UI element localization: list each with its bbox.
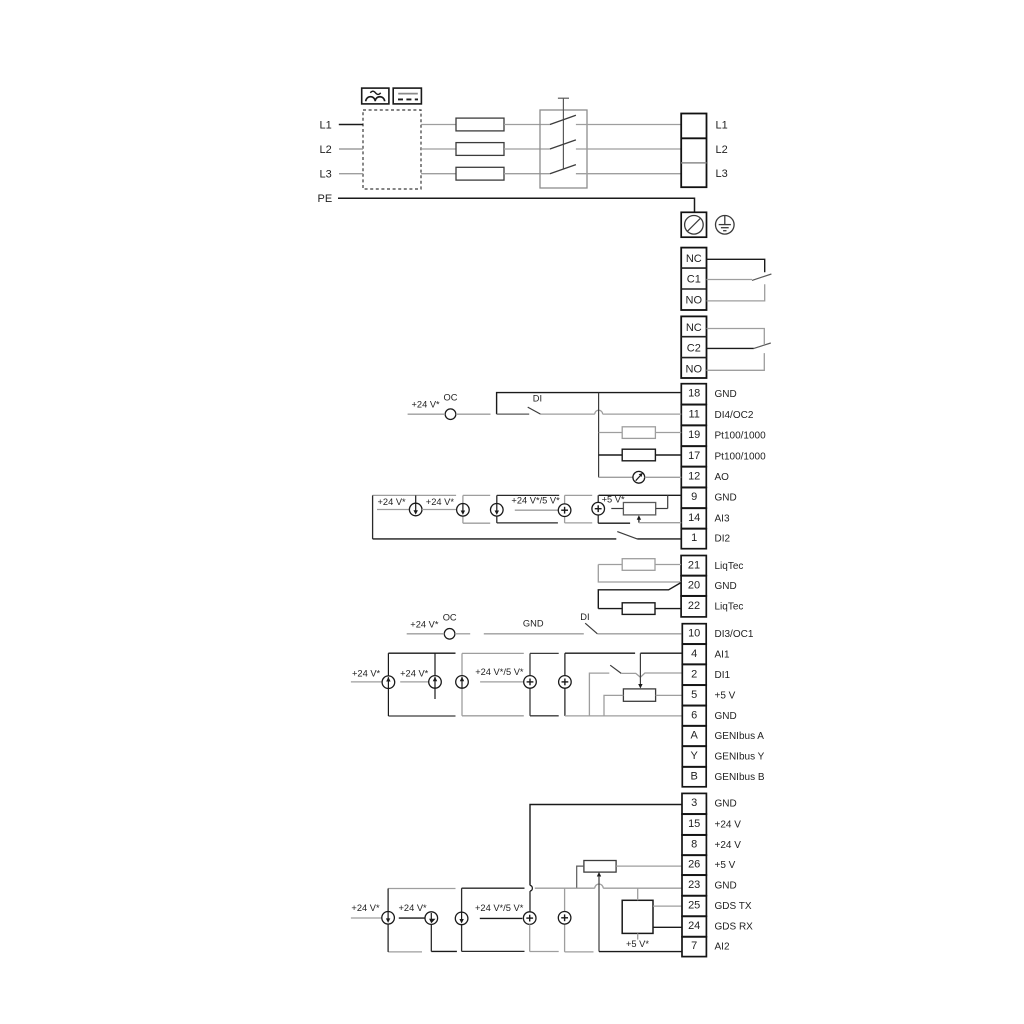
svg-text:GENIbus A: GENIbus A (715, 731, 765, 742)
svg-text:+24 V*: +24 V* (399, 903, 428, 913)
svg-text:5: 5 (691, 689, 697, 701)
svg-text:20: 20 (688, 580, 700, 592)
svg-text:C1: C1 (687, 274, 701, 286)
svg-text:AI3: AI3 (715, 513, 730, 524)
svg-text:18: 18 (688, 388, 700, 400)
svg-text:22: 22 (688, 600, 700, 612)
svg-text:4: 4 (691, 648, 697, 660)
svg-text:3: 3 (691, 797, 697, 809)
svg-text:+5 V: +5 V (715, 691, 736, 702)
svg-text:2: 2 (691, 668, 697, 680)
svg-text:L2: L2 (320, 144, 332, 156)
svg-text:+5 V: +5 V (715, 860, 736, 871)
svg-text:LiqTec: LiqTec (715, 602, 744, 613)
svg-text:+24 V*/5 V*: +24 V*/5 V* (475, 903, 524, 913)
svg-text:GDS TX: GDS TX (715, 901, 752, 912)
svg-text:11: 11 (688, 408, 699, 420)
svg-text:21: 21 (688, 559, 700, 571)
svg-text:8: 8 (691, 839, 697, 851)
svg-text:AI1: AI1 (715, 649, 730, 660)
svg-text:Y: Y (691, 750, 699, 762)
svg-text:+24 V*: +24 V* (410, 620, 439, 630)
svg-text:NC: NC (686, 322, 702, 334)
svg-text:L1: L1 (716, 120, 728, 132)
svg-text:DI1: DI1 (715, 670, 731, 681)
svg-text:Pt100/1000: Pt100/1000 (715, 451, 767, 462)
svg-text:+24 V*/5 V*: +24 V*/5 V* (475, 667, 524, 677)
svg-text:12: 12 (688, 470, 700, 482)
svg-text:GND: GND (715, 389, 737, 400)
svg-text:26: 26 (688, 859, 700, 871)
svg-text:A: A (691, 730, 699, 742)
svg-text:L3: L3 (716, 168, 728, 180)
svg-text:+24 V*: +24 V* (426, 497, 455, 507)
svg-text:PE: PE (318, 193, 333, 205)
svg-text:6: 6 (691, 709, 697, 721)
svg-text:1: 1 (691, 532, 697, 544)
svg-text:OC: OC (444, 393, 458, 403)
svg-text:19: 19 (688, 429, 700, 441)
svg-text:14: 14 (688, 512, 700, 524)
svg-text:+24 V: +24 V (715, 820, 742, 831)
svg-text:GND: GND (715, 880, 737, 891)
svg-text:+24 V*: +24 V* (378, 497, 407, 507)
svg-text:L3: L3 (320, 168, 332, 180)
svg-text:DI4/OC2: DI4/OC2 (715, 410, 754, 421)
svg-text:AO: AO (715, 472, 730, 483)
svg-text:9: 9 (691, 491, 697, 503)
svg-text:GND: GND (523, 619, 544, 629)
svg-text:NO: NO (686, 295, 703, 307)
svg-text:DI2: DI2 (715, 534, 731, 545)
svg-text:L1: L1 (320, 119, 332, 131)
svg-text:15: 15 (688, 818, 700, 830)
svg-text:GENIbus B: GENIbus B (715, 772, 765, 783)
svg-text:24: 24 (688, 920, 700, 932)
svg-text:+24 V*/5 V*: +24 V*/5 V* (511, 496, 560, 506)
svg-text:7: 7 (691, 940, 697, 952)
svg-text:GENIbus Y: GENIbus Y (715, 752, 765, 763)
svg-text:GDS RX: GDS RX (715, 922, 754, 933)
svg-text:L2: L2 (716, 144, 728, 156)
svg-text:GND: GND (715, 799, 737, 810)
svg-text:B: B (691, 771, 698, 783)
svg-text:DI: DI (533, 394, 542, 404)
svg-text:DI: DI (580, 612, 589, 622)
svg-text:NC: NC (686, 253, 702, 265)
svg-text:NO: NO (686, 364, 703, 376)
svg-text:+24 V*: +24 V* (400, 668, 429, 678)
svg-text:GND: GND (715, 493, 737, 504)
svg-text:GND: GND (715, 711, 737, 722)
svg-text:+24 V*: +24 V* (412, 400, 441, 410)
svg-text:17: 17 (688, 450, 700, 462)
svg-text:23: 23 (688, 879, 700, 891)
svg-text:10: 10 (688, 628, 700, 640)
svg-text:LiqTec: LiqTec (715, 561, 744, 572)
svg-text:DI3/OC1: DI3/OC1 (715, 629, 754, 640)
svg-text:C2: C2 (687, 343, 701, 355)
svg-text:GND: GND (715, 581, 737, 592)
svg-text:OC: OC (443, 613, 457, 623)
svg-text:+5 V*: +5 V* (626, 939, 649, 949)
svg-text:+24 V*: +24 V* (352, 668, 381, 678)
svg-text:25: 25 (688, 900, 700, 912)
svg-text:+24 V: +24 V (715, 840, 742, 851)
svg-text:Pt100/1000: Pt100/1000 (715, 431, 767, 442)
svg-text:+5 V*: +5 V* (602, 495, 625, 505)
svg-text:+24 V*: +24 V* (351, 903, 380, 913)
svg-text:AI2: AI2 (715, 942, 730, 953)
